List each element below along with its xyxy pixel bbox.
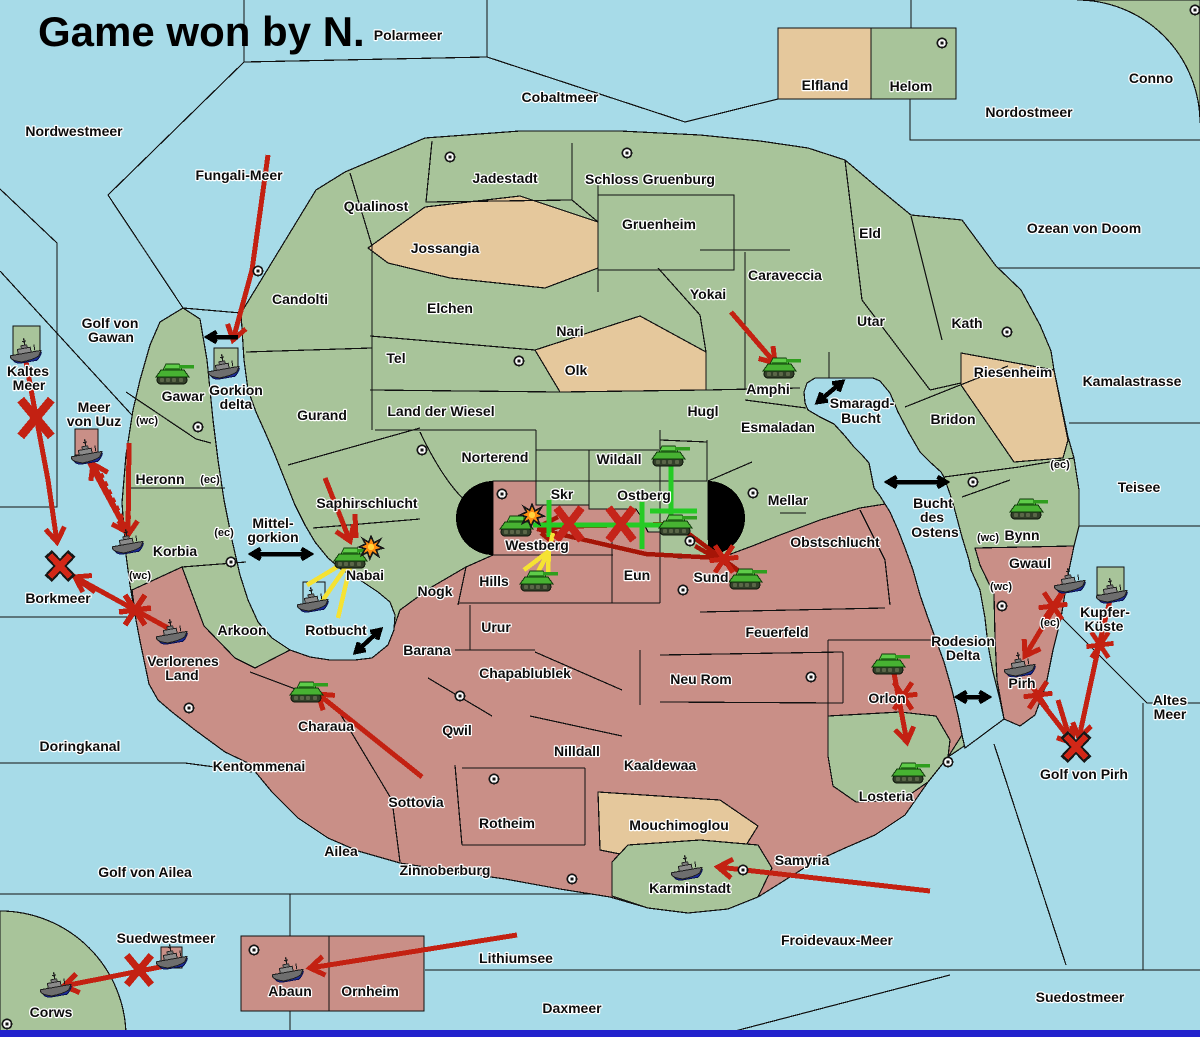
svg-text:Esmaladan: Esmaladan	[741, 419, 815, 435]
svg-text:Candolti: Candolti	[272, 291, 328, 307]
svg-text:Olk: Olk	[565, 362, 588, 378]
svg-text:Borkmeer: Borkmeer	[25, 590, 91, 606]
svg-text:Arkoon: Arkoon	[218, 622, 267, 638]
svg-text:Sottovia: Sottovia	[388, 794, 443, 810]
svg-text:Barana: Barana	[403, 642, 451, 658]
svg-text:Elchen: Elchen	[427, 300, 473, 316]
svg-text:Obstschlucht: Obstschlucht	[790, 534, 880, 550]
svg-text:Westberg: Westberg	[505, 537, 569, 553]
svg-text:Kath: Kath	[951, 315, 982, 331]
svg-text:Polarmeer: Polarmeer	[374, 27, 443, 43]
svg-text:Heronn: Heronn	[136, 471, 185, 487]
svg-text:Golf von Pirh: Golf von Pirh	[1040, 766, 1128, 782]
svg-text:von Uuz: von Uuz	[67, 413, 121, 429]
svg-text:Bridon: Bridon	[930, 411, 975, 427]
svg-text:Schloss Gruenburg: Schloss Gruenburg	[585, 171, 715, 187]
svg-text:Nari: Nari	[556, 323, 583, 339]
svg-text:Gawan: Gawan	[88, 329, 134, 345]
svg-text:Nordostmeer: Nordostmeer	[985, 104, 1073, 120]
svg-text:Neu Rom: Neu Rom	[670, 671, 731, 687]
svg-text:Utar: Utar	[857, 313, 886, 329]
svg-text:Ostberg: Ostberg	[617, 487, 671, 503]
svg-text:Caraveccia: Caraveccia	[748, 267, 822, 283]
svg-text:Wildall: Wildall	[597, 451, 642, 467]
svg-text:Sund: Sund	[694, 569, 729, 585]
svg-text:Samyria: Samyria	[775, 852, 830, 868]
svg-text:Cobaltmeer: Cobaltmeer	[521, 89, 599, 105]
svg-text:Ozean von Doom: Ozean von Doom	[1027, 220, 1141, 236]
svg-text:Elfland: Elfland	[802, 77, 849, 93]
svg-text:Losteria: Losteria	[859, 788, 914, 804]
svg-text:Meer: Meer	[13, 377, 46, 393]
svg-text:Zinnoberburg: Zinnoberburg	[400, 862, 491, 878]
svg-text:Riesenheim: Riesenheim	[974, 364, 1053, 380]
svg-text:(wc): (wc)	[977, 532, 999, 544]
svg-text:Eun: Eun	[624, 567, 650, 583]
svg-text:Delta: Delta	[946, 647, 980, 663]
svg-text:Qwil: Qwil	[442, 722, 472, 738]
svg-text:(ec): (ec)	[214, 527, 234, 539]
svg-text:gorkion: gorkion	[247, 529, 298, 545]
svg-text:Mellar: Mellar	[768, 492, 809, 508]
svg-text:Chapablublek: Chapablublek	[479, 665, 571, 681]
svg-text:Jossangia: Jossangia	[411, 240, 480, 256]
svg-text:(wc): (wc)	[990, 581, 1012, 593]
svg-text:Smaragd-: Smaragd-	[830, 395, 895, 411]
svg-text:Nordwestmeer: Nordwestmeer	[25, 123, 123, 139]
svg-text:Pirh: Pirh	[1008, 675, 1035, 691]
svg-text:Rotbucht: Rotbucht	[305, 622, 367, 638]
svg-text:Kaaldewaa: Kaaldewaa	[624, 757, 697, 773]
svg-text:Tel: Tel	[386, 350, 405, 366]
svg-text:Land: Land	[165, 667, 198, 683]
svg-text:Mouchimoglou: Mouchimoglou	[629, 817, 729, 833]
svg-text:Gurand: Gurand	[297, 407, 347, 423]
svg-text:Meer: Meer	[1154, 706, 1187, 722]
svg-text:Karminstadt: Karminstadt	[649, 880, 731, 896]
svg-text:Golf von Ailea: Golf von Ailea	[98, 864, 192, 880]
svg-text:Orlon: Orlon	[868, 690, 905, 706]
svg-text:Abaun: Abaun	[268, 983, 312, 999]
svg-text:Suedwestmeer: Suedwestmeer	[117, 930, 216, 946]
svg-text:Nabai: Nabai	[346, 567, 384, 583]
svg-text:Kamalastrasse: Kamalastrasse	[1083, 373, 1182, 389]
svg-text:Hills: Hills	[479, 573, 509, 589]
svg-text:Fungali-Meer: Fungali-Meer	[195, 167, 283, 183]
svg-text:Norterend: Norterend	[462, 449, 529, 465]
svg-text:Qualinost: Qualinost	[344, 198, 409, 214]
svg-text:Ailea: Ailea	[324, 843, 358, 859]
svg-text:Land der Wiesel: Land der Wiesel	[387, 403, 494, 419]
svg-text:Daxmeer: Daxmeer	[542, 1000, 602, 1016]
svg-text:delta: delta	[220, 396, 253, 412]
svg-text:(wc): (wc)	[129, 570, 151, 582]
svg-text:Teisee: Teisee	[1118, 479, 1161, 495]
svg-text:Korbia: Korbia	[153, 543, 198, 559]
svg-text:Jadestadt: Jadestadt	[472, 170, 538, 186]
svg-text:Game won by N.: Game won by N.	[38, 8, 365, 55]
svg-text:Lithiumsee: Lithiumsee	[479, 950, 553, 966]
svg-text:Feuerfeld: Feuerfeld	[745, 624, 808, 640]
svg-text:(ec): (ec)	[1050, 459, 1070, 471]
svg-text:Eld: Eld	[859, 225, 881, 241]
svg-text:Saphirschlucht: Saphirschlucht	[316, 495, 417, 511]
svg-text:Charaua: Charaua	[298, 718, 354, 734]
svg-text:Yokai: Yokai	[690, 286, 726, 302]
svg-text:Suedostmeer: Suedostmeer	[1036, 989, 1125, 1005]
svg-text:des: des	[920, 509, 944, 525]
svg-text:Rotheim: Rotheim	[479, 815, 535, 831]
svg-text:Kentommenai: Kentommenai	[213, 758, 306, 774]
svg-text:(wc): (wc)	[136, 415, 158, 427]
svg-text:Urur: Urur	[481, 619, 511, 635]
svg-text:Nogk: Nogk	[418, 583, 453, 599]
svg-text:Bynn: Bynn	[1005, 527, 1040, 543]
svg-text:Ostens: Ostens	[911, 524, 959, 540]
svg-text:Bucht: Bucht	[841, 410, 881, 426]
svg-text:Gawar: Gawar	[162, 388, 205, 404]
svg-text:Gwaul: Gwaul	[1009, 555, 1051, 571]
svg-text:Skr: Skr	[551, 486, 574, 502]
svg-text:Corws: Corws	[30, 1004, 73, 1020]
svg-text:Hugl: Hugl	[687, 403, 718, 419]
svg-text:(ec): (ec)	[1040, 617, 1060, 629]
svg-text:Ornheim: Ornheim	[341, 983, 399, 999]
svg-text:Helom: Helom	[890, 78, 933, 94]
svg-text:(ec): (ec)	[200, 474, 220, 486]
svg-text:Gruenheim: Gruenheim	[622, 216, 696, 232]
svg-text:Doringkanal: Doringkanal	[40, 738, 121, 754]
svg-text:Küste: Küste	[1085, 618, 1124, 634]
svg-text:Amphi: Amphi	[746, 381, 790, 397]
svg-text:Nilldall: Nilldall	[554, 743, 600, 759]
svg-text:Conno: Conno	[1129, 70, 1173, 86]
svg-text:Froidevaux-Meer: Froidevaux-Meer	[781, 932, 894, 948]
